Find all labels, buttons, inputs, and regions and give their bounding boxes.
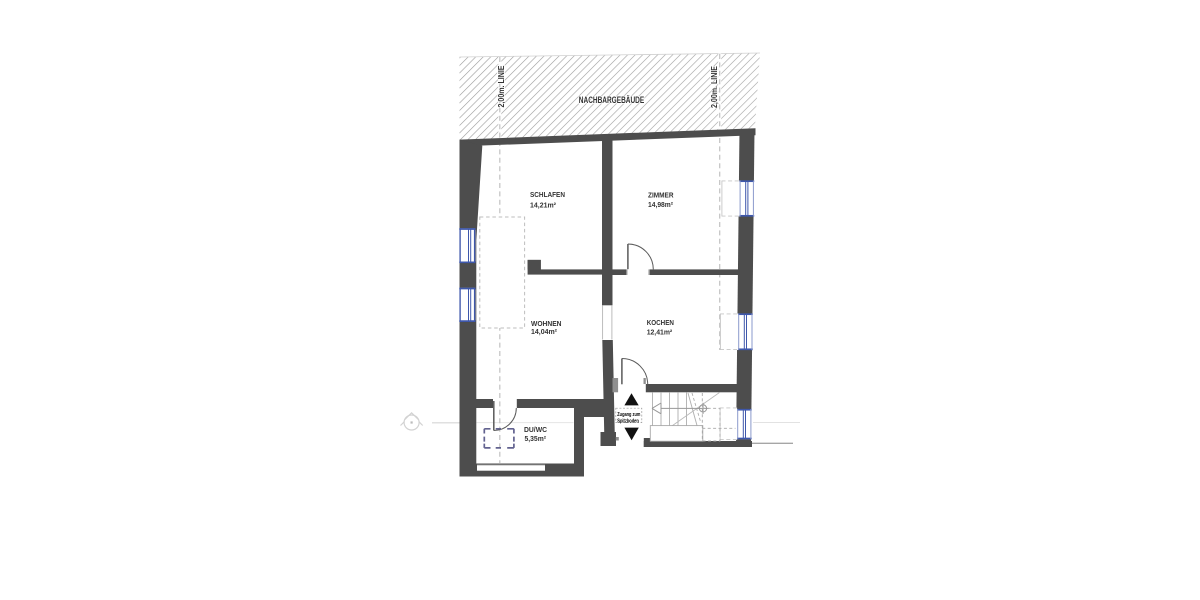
svg-text:DU/WC: DU/WC xyxy=(524,425,548,434)
svg-text:14,98m²: 14,98m² xyxy=(648,200,673,209)
svg-text:KOCHEN: KOCHEN xyxy=(647,318,674,327)
svg-text:14,04m²: 14,04m² xyxy=(531,327,558,336)
svg-text:2,00m. LINIE: 2,00m. LINIE xyxy=(496,65,506,107)
svg-text:14,21m²: 14,21m² xyxy=(530,200,557,209)
svg-text:12,41m²: 12,41m² xyxy=(647,327,673,336)
svg-text:NACHBARGEBÄUDE: NACHBARGEBÄUDE xyxy=(579,95,644,105)
svg-text:ZIMMER: ZIMMER xyxy=(648,190,674,199)
svg-text:SCHLAFEN: SCHLAFEN xyxy=(530,190,565,199)
svg-text:5,35m²: 5,35m² xyxy=(525,434,547,443)
svg-text:Spitzboden: Spitzboden xyxy=(617,418,639,424)
svg-text:2,00m. LINIE: 2,00m. LINIE xyxy=(709,66,719,108)
svg-text:Zugang zum: Zugang zum xyxy=(617,412,640,418)
